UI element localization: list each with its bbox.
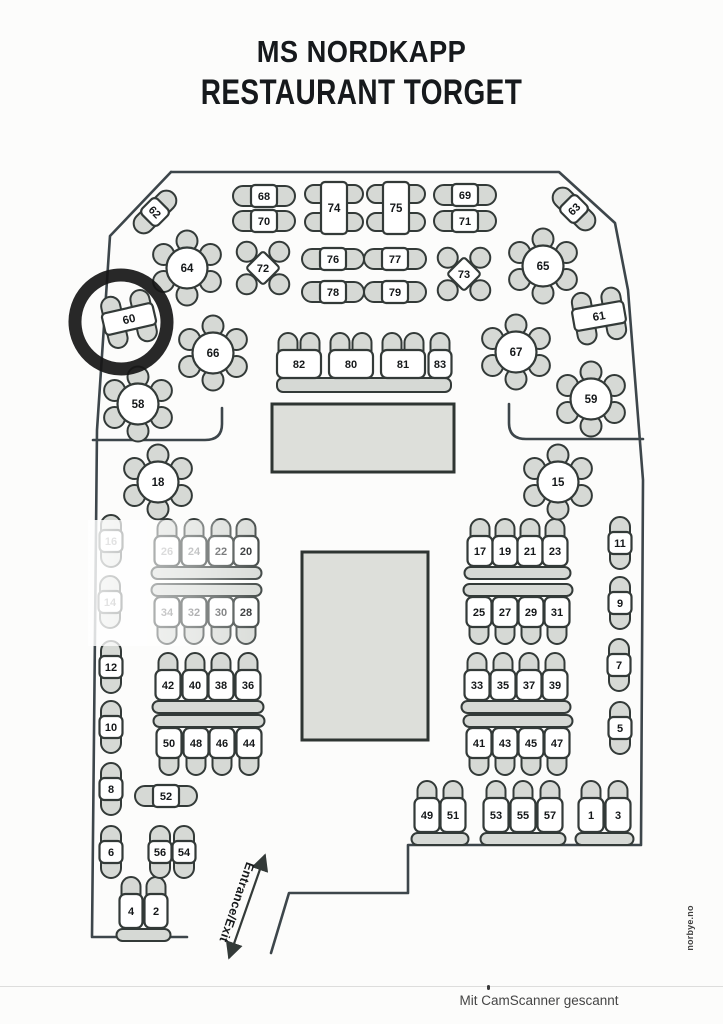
table-12: 12 bbox=[100, 641, 123, 693]
table-number: 1 bbox=[588, 810, 594, 822]
table-56: 56 bbox=[149, 826, 172, 878]
table-70: 70 bbox=[233, 210, 295, 232]
table-number: 46 bbox=[216, 738, 228, 750]
table-number: 40 bbox=[189, 680, 201, 692]
table-number: 23 bbox=[549, 546, 561, 558]
booth-row-4-2: 42 bbox=[117, 877, 171, 941]
bench bbox=[464, 584, 573, 596]
table-45: 45 bbox=[519, 728, 544, 758]
service-counter bbox=[302, 552, 428, 740]
booth-row-33-35-37-39: 33353739 bbox=[462, 653, 571, 713]
table-number: 41 bbox=[473, 738, 485, 750]
table-number: 19 bbox=[499, 546, 511, 558]
booth-row-42-40-38-36: 42403836 bbox=[153, 653, 264, 713]
table-number: 64 bbox=[181, 263, 194, 275]
table-33: 33 bbox=[465, 670, 490, 700]
bench bbox=[576, 833, 634, 845]
table-18: 18 bbox=[124, 445, 192, 520]
table-number: 38 bbox=[215, 680, 227, 692]
table-number: 67 bbox=[510, 347, 523, 359]
table-number: 10 bbox=[105, 722, 117, 734]
chair bbox=[237, 242, 257, 262]
table-29: 29 bbox=[519, 597, 544, 627]
table-number: 74 bbox=[328, 203, 341, 215]
table-number: 57 bbox=[544, 810, 556, 822]
table-number: 55 bbox=[517, 810, 529, 822]
booth-row-41-43-45-47: 41434547 bbox=[464, 715, 573, 775]
table-number: 25 bbox=[473, 607, 485, 619]
table-number: 77 bbox=[389, 254, 401, 266]
service-areas-layer bbox=[272, 404, 454, 740]
table-43: 43 bbox=[493, 728, 518, 758]
table-61: 61 bbox=[569, 286, 629, 346]
chair bbox=[269, 242, 289, 262]
booth-row-50-48-46-44: 50484644 bbox=[154, 715, 265, 775]
table-50: 50 bbox=[157, 728, 182, 758]
chair bbox=[237, 274, 257, 294]
bench bbox=[277, 378, 451, 392]
table-79: 79 bbox=[364, 281, 426, 303]
table-number: 49 bbox=[421, 810, 433, 822]
table-75: 75 bbox=[367, 182, 425, 234]
chair bbox=[438, 280, 458, 300]
table-81: 81 bbox=[381, 350, 425, 378]
table-number: 5 bbox=[617, 723, 623, 735]
table-76: 76 bbox=[302, 248, 364, 270]
table-1: 1 bbox=[579, 798, 604, 832]
scan-edge-line bbox=[0, 986, 723, 987]
table-number: 65 bbox=[537, 261, 550, 273]
table-4: 4 bbox=[120, 894, 143, 928]
table-number: 75 bbox=[390, 203, 403, 215]
table-39: 39 bbox=[543, 670, 568, 700]
table-number: 54 bbox=[178, 847, 191, 859]
table-47: 47 bbox=[545, 728, 570, 758]
bench bbox=[465, 567, 571, 579]
table-number: 12 bbox=[105, 662, 117, 674]
booth-row-49-51: 4951 bbox=[412, 781, 469, 845]
table-72: 72 bbox=[237, 242, 290, 295]
table-number: 17 bbox=[474, 546, 486, 558]
table-68: 68 bbox=[233, 185, 295, 207]
table-number: 11 bbox=[614, 538, 626, 550]
table-number: 69 bbox=[459, 190, 471, 202]
table-number: 78 bbox=[327, 287, 339, 299]
table-25: 25 bbox=[467, 597, 492, 627]
table-number: 42 bbox=[162, 680, 174, 692]
table-number: 56 bbox=[154, 847, 166, 859]
table-40: 40 bbox=[183, 670, 208, 700]
table-number: 33 bbox=[471, 680, 483, 692]
table-number: 70 bbox=[258, 216, 270, 228]
table-65: 65 bbox=[509, 229, 577, 304]
table-53: 53 bbox=[484, 798, 509, 832]
table-48: 48 bbox=[184, 728, 209, 758]
table-number: 27 bbox=[499, 607, 511, 619]
page-subtitle: RESTAURANT TORGET bbox=[72, 73, 650, 113]
service-counter bbox=[272, 404, 454, 472]
booth-row-17-19-21-23: 17192123 bbox=[465, 519, 571, 579]
booth-row-82-80-81-83: 82808183 bbox=[277, 333, 452, 392]
table-35: 35 bbox=[491, 670, 516, 700]
bench bbox=[154, 715, 265, 727]
bench bbox=[153, 701, 264, 713]
bench bbox=[464, 715, 573, 727]
table-10: 10 bbox=[100, 701, 123, 753]
table-number: 66 bbox=[207, 348, 220, 360]
page-header: MS NORDKAPP RESTAURANT TORGET bbox=[0, 34, 723, 113]
table-number: 68 bbox=[258, 191, 270, 203]
table-59: 59 bbox=[557, 362, 625, 437]
floor-plan: 8280818326242220343230284240383650484644… bbox=[0, 0, 723, 1024]
camscanner-watermark: Mit CamScanner gescannt bbox=[439, 993, 639, 1008]
table-73: 73 bbox=[438, 248, 491, 301]
table-52: 52 bbox=[135, 785, 197, 807]
table-number: 80 bbox=[345, 359, 357, 371]
bench bbox=[117, 929, 171, 941]
table-55: 55 bbox=[511, 798, 536, 832]
table-78: 78 bbox=[302, 281, 364, 303]
table-69: 69 bbox=[434, 184, 496, 206]
table-37: 37 bbox=[517, 670, 542, 700]
table-number: 43 bbox=[499, 738, 511, 750]
table-46: 46 bbox=[210, 728, 235, 758]
table-number: 59 bbox=[585, 394, 598, 406]
chair bbox=[470, 280, 490, 300]
table-number: 73 bbox=[458, 269, 470, 281]
table-42: 42 bbox=[156, 670, 181, 700]
table-number: 47 bbox=[551, 738, 563, 750]
table-7: 7 bbox=[608, 639, 631, 691]
table-54: 54 bbox=[173, 826, 196, 878]
table-number: 2 bbox=[153, 906, 159, 918]
table-number: 31 bbox=[551, 607, 563, 619]
table-number: 50 bbox=[163, 738, 175, 750]
table-74: 74 bbox=[305, 182, 363, 234]
scan-fade-artifact bbox=[88, 520, 280, 646]
chair bbox=[470, 248, 490, 268]
table-number: 18 bbox=[152, 477, 165, 489]
table-63: 63 bbox=[547, 182, 600, 235]
table-36: 36 bbox=[236, 670, 261, 700]
booth-row-1-3: 13 bbox=[576, 781, 634, 845]
table-number: 9 bbox=[617, 598, 623, 610]
table-number: 37 bbox=[523, 680, 535, 692]
table-number: 82 bbox=[293, 359, 305, 371]
table-number: 48 bbox=[190, 738, 202, 750]
table-number: 71 bbox=[459, 216, 471, 228]
table-71: 71 bbox=[434, 210, 496, 232]
table-number: 8 bbox=[108, 784, 114, 796]
table-number: 35 bbox=[497, 680, 509, 692]
table-6: 6 bbox=[100, 826, 123, 878]
entrance-exit: Entrance/Exit bbox=[216, 855, 265, 958]
bench bbox=[481, 833, 566, 845]
table-number: 81 bbox=[397, 359, 409, 371]
table-2: 2 bbox=[145, 894, 168, 928]
table-17: 17 bbox=[468, 536, 493, 566]
table-number: 51 bbox=[447, 810, 459, 822]
table-number: 6 bbox=[108, 847, 114, 859]
table-number: 79 bbox=[389, 287, 401, 299]
chair bbox=[438, 248, 458, 268]
booth-row-25-27-29-31: 25272931 bbox=[464, 584, 573, 644]
table-11: 11 bbox=[609, 517, 632, 569]
table-80: 80 bbox=[329, 350, 373, 378]
table-21: 21 bbox=[518, 536, 543, 566]
table-66: 66 bbox=[179, 316, 247, 391]
scan-artifact-dot bbox=[487, 985, 490, 990]
page-title: MS NORDKAPP bbox=[43, 34, 679, 70]
table-67: 67 bbox=[482, 315, 550, 390]
bench bbox=[462, 701, 571, 713]
entrance-exit-label: Entrance/Exit bbox=[216, 860, 257, 944]
table-3: 3 bbox=[606, 798, 631, 832]
table-23: 23 bbox=[543, 536, 568, 566]
credit-norbye: norbye.no bbox=[685, 898, 697, 958]
table-15: 15 bbox=[524, 445, 592, 520]
table-83: 83 bbox=[429, 350, 452, 378]
table-82: 82 bbox=[277, 350, 321, 378]
table-5: 5 bbox=[609, 702, 632, 754]
table-49: 49 bbox=[415, 798, 440, 832]
table-8: 8 bbox=[100, 763, 123, 815]
table-number: 39 bbox=[549, 680, 561, 692]
booth-row-53-55-57: 535557 bbox=[481, 781, 566, 845]
table-27: 27 bbox=[493, 597, 518, 627]
table-60: 60 bbox=[98, 288, 160, 350]
table-9: 9 bbox=[609, 577, 632, 629]
table-number: 52 bbox=[160, 791, 172, 803]
table-77: 77 bbox=[364, 248, 426, 270]
table-number: 15 bbox=[552, 477, 565, 489]
table-number: 7 bbox=[616, 660, 622, 672]
table-38: 38 bbox=[209, 670, 234, 700]
table-57: 57 bbox=[538, 798, 563, 832]
bench bbox=[412, 833, 469, 845]
table-19: 19 bbox=[493, 536, 518, 566]
table-number: 53 bbox=[490, 810, 502, 822]
table-41: 41 bbox=[467, 728, 492, 758]
scanned-page: MS NORDKAPP RESTAURANT TORGET 8280818326… bbox=[0, 0, 723, 1024]
table-number: 29 bbox=[525, 607, 537, 619]
table-number: 45 bbox=[525, 738, 537, 750]
table-number: 58 bbox=[132, 399, 145, 411]
table-number: 83 bbox=[434, 359, 446, 371]
table-44: 44 bbox=[237, 728, 262, 758]
table-number: 44 bbox=[243, 738, 256, 750]
table-number: 76 bbox=[327, 254, 339, 266]
table-number: 4 bbox=[128, 906, 135, 918]
table-51: 51 bbox=[441, 798, 466, 832]
table-number: 3 bbox=[615, 810, 621, 822]
table-31: 31 bbox=[545, 597, 570, 627]
table-62: 62 bbox=[128, 185, 181, 238]
table-number: 21 bbox=[524, 546, 536, 558]
chair bbox=[269, 274, 289, 294]
table-58: 58 bbox=[104, 367, 172, 442]
table-number: 72 bbox=[257, 263, 269, 275]
table-number: 36 bbox=[242, 680, 254, 692]
